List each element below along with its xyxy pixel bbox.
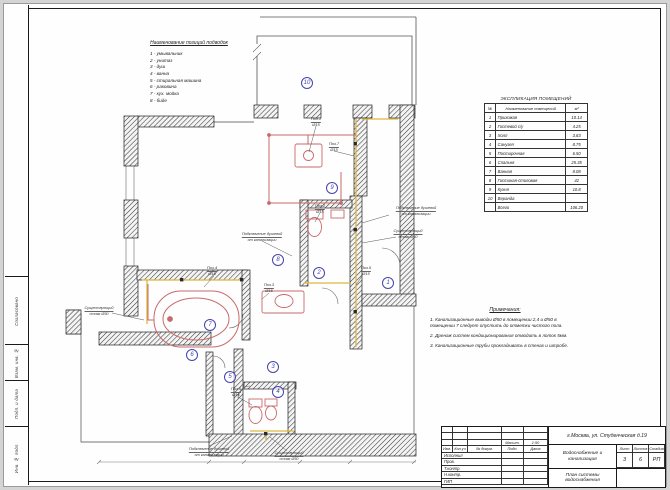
cell-name: Постирочная bbox=[496, 149, 566, 158]
callout-pos7: Поз.7Ø15 bbox=[329, 142, 339, 153]
title-block-right: г.Москва, ул. Студенческая д.19 Водоснаб… bbox=[549, 427, 665, 487]
callout-pos2: Поз.2Ø15 bbox=[315, 204, 325, 215]
cell-name: Гостевой с/у bbox=[496, 122, 566, 131]
table-row: 9Кухня10.8 bbox=[485, 185, 588, 194]
cell-area: 10.8 bbox=[566, 185, 588, 194]
table-header-row: № Наименование помещений м² bbox=[485, 104, 588, 113]
legend-title: Наименование позиций подводок bbox=[124, 40, 254, 46]
legend-item: 6 - раковина bbox=[150, 84, 254, 91]
table-row: 3Холл3.83 bbox=[485, 131, 588, 140]
cell-area: 3.83 bbox=[566, 131, 588, 140]
callout-pos5: Поз.5Ø15 bbox=[361, 266, 371, 277]
cell-name: Спальня bbox=[496, 158, 566, 167]
table-row: 4Санузел8.75 bbox=[485, 140, 588, 149]
role-gip: ГИП bbox=[442, 479, 502, 485]
cell-area: 6.50 bbox=[566, 149, 588, 158]
drawing-title: План системы водоснабжения bbox=[549, 469, 617, 487]
room-badge-8: 8 bbox=[272, 254, 284, 266]
cell-area: 4.25 bbox=[566, 122, 588, 131]
room-badge-7: 7 bbox=[204, 319, 216, 331]
cell-name: Кухня bbox=[496, 185, 566, 194]
callout-existing-riser: Существующийстояк Ø50 bbox=[274, 451, 303, 462]
sheet-frame bbox=[28, 8, 661, 482]
project-name: Водоснабжение и канализация bbox=[549, 445, 617, 468]
legend-item: 8 - биде bbox=[150, 98, 254, 105]
cell-num: 4 bbox=[485, 140, 496, 149]
legend-item: 7 - кух. мойка bbox=[150, 91, 254, 98]
room-badge-9: 9 bbox=[326, 182, 338, 194]
cell-name: Санузел bbox=[496, 140, 566, 149]
cell-num: 7 bbox=[485, 167, 496, 176]
cell-num: 6 bbox=[485, 158, 496, 167]
listov-label: Листов bbox=[633, 445, 649, 453]
cell-area bbox=[566, 194, 588, 203]
room-badge-3: 3 bbox=[267, 361, 279, 373]
callout-shower-connection: Подключение душевойот канализации bbox=[396, 206, 436, 217]
note-item: 2. Дренаж систем кондиционирования отвод… bbox=[430, 333, 580, 339]
room-badge-5: 5 bbox=[224, 371, 236, 383]
callout-pos6: Поз.6Ø15 bbox=[231, 387, 241, 398]
cell-num: 10 bbox=[485, 194, 496, 203]
cell-name: Гостиная-столовая bbox=[496, 176, 566, 185]
cell-area: 8.08 bbox=[566, 167, 588, 176]
callout-existing-riser: Существующийстояк Ø50 bbox=[84, 306, 113, 317]
callout-pos1: Поз.1Ø15 bbox=[311, 117, 321, 128]
listov-value: 6 bbox=[633, 453, 649, 468]
room-badge-10: 10 bbox=[301, 77, 313, 89]
table-row: 6Спальня25.35 bbox=[485, 158, 588, 167]
notes-title: Примечания: bbox=[430, 307, 580, 313]
strip-label: Подп. и дата bbox=[14, 389, 19, 419]
explication-title: ЭКСПЛИКАЦИЯ ПОМЕЩЕНИЙ bbox=[484, 96, 588, 101]
note-item: 3. Канализационные трубы прокладывать в … bbox=[430, 343, 580, 349]
cell-num: 9 bbox=[485, 185, 496, 194]
table-row: 7Ванная8.08 bbox=[485, 167, 588, 176]
stage-value: РП bbox=[649, 453, 665, 468]
legend-item: 3 - душ bbox=[150, 64, 254, 71]
strip-cell: Подп. и дата bbox=[5, 380, 28, 427]
cell-num: 1 bbox=[485, 113, 496, 122]
sheet-info-grid: Лист Листов Стадия 3 6 РП bbox=[617, 445, 665, 468]
room-badge-2: 2 bbox=[313, 267, 325, 279]
col-header: Наименование помещений bbox=[496, 104, 566, 113]
legend-block: Наименование позиций подводок 1 - умывал… bbox=[124, 40, 254, 104]
callout-shower-connection: Подключение душевойот канализации bbox=[242, 232, 282, 243]
title-block-mid: Водоснабжение и канализация Лист Листов … bbox=[549, 445, 665, 469]
cell-name: Ванная bbox=[496, 167, 566, 176]
empty-cell bbox=[524, 479, 548, 485]
cell-num bbox=[485, 203, 496, 212]
table-row: 10Веранда bbox=[485, 194, 588, 203]
drawing-sheet: Согласовано Взам. инв. № Подп. и дата Ин… bbox=[3, 3, 667, 487]
callout-pos4: Поз.4Ø15 bbox=[207, 266, 217, 277]
table-row: 1Прихожая10.14 bbox=[485, 113, 588, 122]
cell-name: Всего bbox=[496, 203, 566, 212]
cell-num: 8 bbox=[485, 176, 496, 185]
cell-name: Веранда bbox=[496, 194, 566, 203]
empty-cell bbox=[502, 479, 524, 485]
table-row-total: Всего106.20 bbox=[485, 203, 588, 212]
table-row: 2Гостевой с/у4.25 bbox=[485, 122, 588, 131]
room-badge-4: 4 bbox=[272, 386, 284, 398]
side-stamp-strip: Согласовано Взам. инв. № Подп. и дата Ин… bbox=[5, 5, 29, 485]
cell-area: 25.35 bbox=[566, 158, 588, 167]
strip-cell: Инв. № подл. bbox=[5, 426, 28, 489]
legend-item: 4 - ванна bbox=[150, 71, 254, 78]
project-address: г.Москва, ул. Студенческая д.19 bbox=[549, 427, 665, 445]
strip-label: Инв. № подл. bbox=[14, 443, 19, 473]
cell-area: 106.20 bbox=[566, 203, 588, 212]
list-label: Лист bbox=[617, 445, 633, 453]
callout-pos3: Поз.3Ø15 bbox=[264, 283, 274, 294]
drawing-page: Согласовано Взам. инв. № Подп. и дата Ин… bbox=[0, 0, 670, 490]
table-row: 8Гостиная-столовая42 bbox=[485, 176, 588, 185]
legend-item: 5 - стиральная машина bbox=[150, 78, 254, 85]
explication-table: № Наименование помещений м² 1Прихожая10.… bbox=[484, 103, 588, 212]
cell-num: 5 bbox=[485, 149, 496, 158]
cell-num: 3 bbox=[485, 131, 496, 140]
title-block-bottom: План системы водоснабжения bbox=[549, 469, 665, 487]
org-cell bbox=[617, 469, 665, 487]
list-value: 3 bbox=[617, 453, 633, 468]
title-block: Масшт. 1:50 Изм. Кол.уч № докум. Подп. Д… bbox=[441, 426, 666, 488]
strip-cell: Согласовано bbox=[5, 276, 28, 345]
stage-label: Стадия bbox=[649, 445, 665, 453]
cell-name: Холл bbox=[496, 131, 566, 140]
room-badge-6: 6 bbox=[186, 349, 198, 361]
cell-area: 42 bbox=[566, 176, 588, 185]
legend-item: 2 - унитаз bbox=[150, 58, 254, 65]
col-header: м² bbox=[566, 104, 588, 113]
table-row: 5Постирочная6.50 bbox=[485, 149, 588, 158]
callout-existing-riser: Существующийстояк Ø50 bbox=[393, 229, 422, 240]
cell-name: Прихожая bbox=[496, 113, 566, 122]
legend-item: 1 - умывальник bbox=[150, 51, 254, 58]
col-header: № bbox=[485, 104, 496, 113]
cell-area: 10.14 bbox=[566, 113, 588, 122]
note-item: 1. Канализационные выводы Ø50 в помещени… bbox=[430, 317, 580, 329]
strip-label: Согласовано bbox=[14, 297, 19, 326]
room-badge-1: 1 bbox=[382, 277, 394, 289]
callout-shower-connection: Подключение душевойот канализации bbox=[189, 447, 229, 458]
cell-num: 2 bbox=[485, 122, 496, 131]
title-block-revision-grid: Масшт. 1:50 Изм. Кол.уч № докум. Подп. Д… bbox=[442, 427, 549, 487]
strip-cell: Взам. инв. № bbox=[5, 344, 28, 381]
strip-label: Взам. инв. № bbox=[14, 348, 19, 378]
cell-area: 8.75 bbox=[566, 140, 588, 149]
notes-block: Примечания: 1. Канализационные выводы Ø5… bbox=[430, 307, 580, 353]
explication-block: ЭКСПЛИКАЦИЯ ПОМЕЩЕНИЙ № Наименование пом… bbox=[484, 96, 588, 212]
